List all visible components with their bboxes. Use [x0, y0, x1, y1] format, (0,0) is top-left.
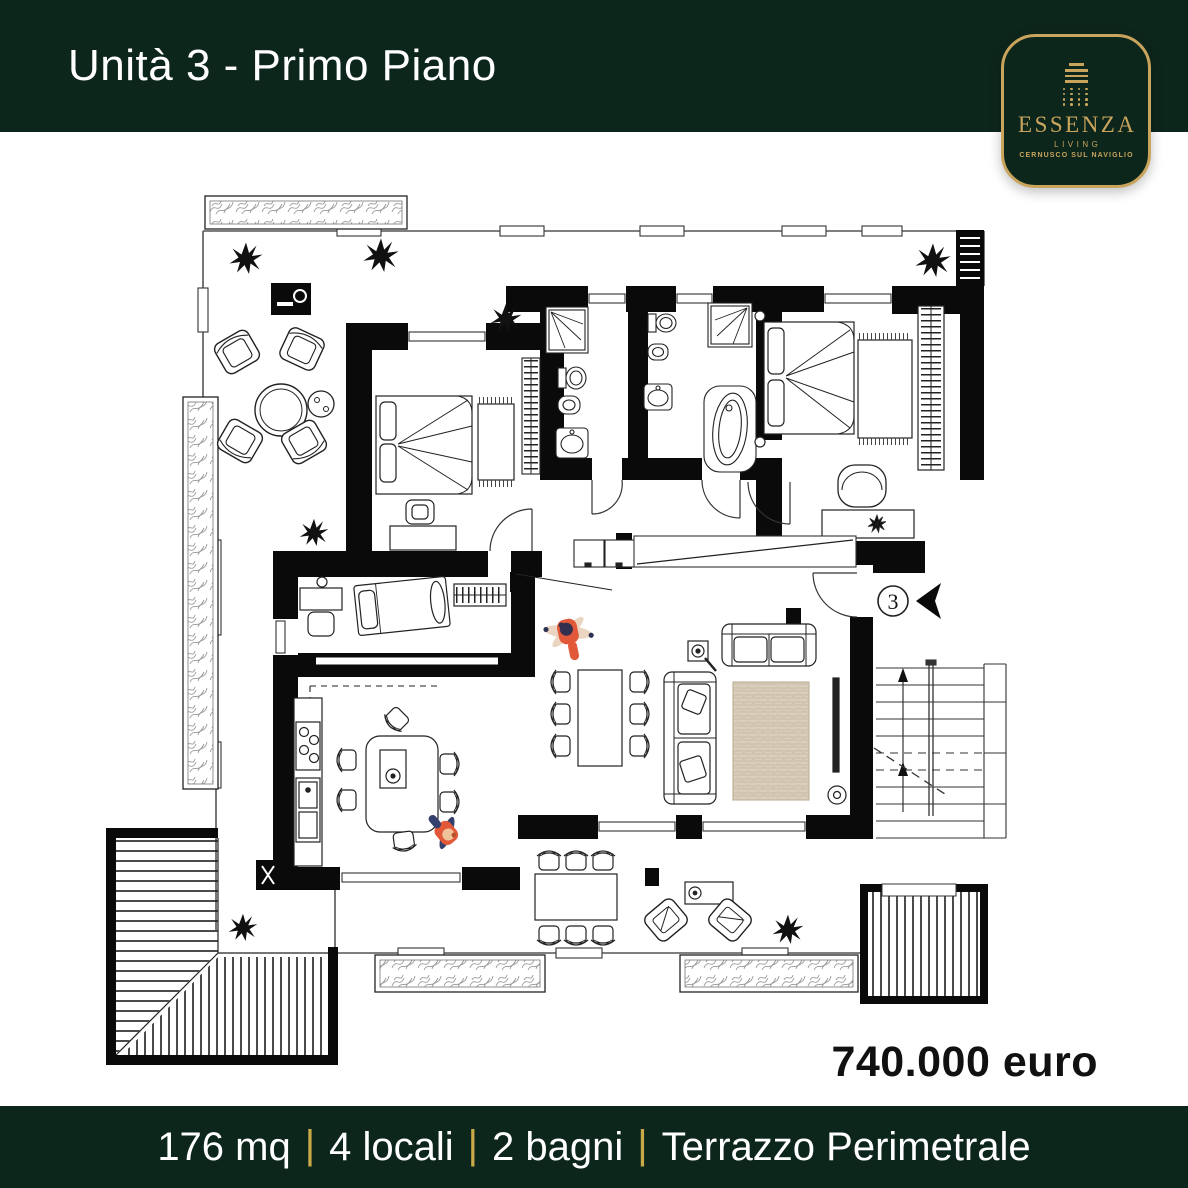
armchair — [838, 465, 886, 507]
kitchen — [294, 686, 459, 866]
footer-item-rooms: 4 locali — [329, 1125, 454, 1170]
single-bed — [354, 576, 451, 635]
footer-item-baths: 2 bagni — [492, 1125, 623, 1170]
chair — [537, 926, 561, 945]
essenza-logo: ESSENZA LIVING CERNUSCO SUL NAVIGLIO — [1001, 34, 1151, 188]
chair — [337, 788, 356, 812]
floor-plan: 3 — [90, 185, 1010, 1065]
stairs — [874, 660, 1006, 838]
dining-table — [578, 670, 622, 766]
sofa-horizontal — [722, 624, 816, 666]
outdoor-table — [535, 874, 617, 920]
chair — [337, 748, 356, 772]
terrace-lounge-area — [212, 243, 334, 467]
master-bedroom — [755, 306, 944, 538]
toilet — [558, 367, 586, 389]
terrace-armchair — [212, 328, 262, 376]
bedroom1 — [376, 358, 540, 550]
tv — [833, 678, 839, 772]
sink — [556, 428, 588, 458]
planter-bottom-right — [680, 955, 858, 992]
hallway — [574, 536, 856, 567]
lounge-chair — [642, 896, 690, 944]
chair — [630, 702, 649, 726]
wardrobe-rack — [918, 306, 944, 470]
terrace-armchair — [215, 417, 265, 465]
plant-icon — [230, 243, 263, 275]
bathtub — [704, 386, 756, 472]
terrace-dining-area — [535, 851, 754, 945]
chair — [391, 830, 417, 852]
desk-chair — [308, 612, 334, 636]
logo-brand-text: ESSENZA — [1018, 113, 1136, 136]
desk — [390, 526, 456, 550]
rug — [733, 682, 809, 800]
footer-bar: 176 mq | 4 locali | 2 bagni | Terrazzo P… — [0, 1106, 1188, 1188]
chair — [551, 670, 570, 694]
entrance-arrow-icon — [916, 583, 941, 619]
speaker — [828, 786, 846, 804]
chair — [630, 734, 649, 758]
chair — [591, 851, 615, 870]
terrace-armchair — [278, 326, 327, 373]
planter-left — [183, 397, 218, 789]
desk — [300, 588, 342, 610]
chair — [440, 790, 459, 814]
plant-icon — [300, 519, 329, 546]
footer-separator: | — [637, 1123, 647, 1168]
plant-icon — [229, 914, 258, 941]
rug — [478, 404, 514, 480]
plant-icon — [915, 243, 950, 277]
person — [540, 611, 598, 665]
side-table — [308, 391, 334, 417]
logo-tagline-text: LIVING — [1054, 140, 1101, 149]
footer-separator: | — [305, 1123, 315, 1168]
rug — [858, 340, 912, 438]
bidet — [648, 344, 668, 360]
unit-marker: 3 — [878, 583, 941, 619]
chair — [630, 670, 649, 694]
bidet — [558, 396, 580, 414]
deck-bottom-right — [860, 884, 988, 1004]
unit-number: 3 — [888, 589, 899, 614]
clothes-rack — [454, 584, 506, 606]
footer-separator: | — [468, 1123, 478, 1168]
plant-icon — [773, 915, 804, 944]
chair — [551, 734, 570, 758]
chair — [591, 926, 615, 945]
footer-item-terrace: Terrazzo Perimetrale — [662, 1125, 1031, 1170]
toilet — [648, 314, 676, 332]
planter-bottom-left — [375, 955, 545, 992]
desk — [822, 510, 914, 538]
logo-location-text: CERNUSCO SUL NAVIGLIO — [1019, 152, 1133, 159]
logo-lines-icon — [1065, 63, 1088, 82]
plant-icon — [363, 238, 398, 272]
sofa-vertical — [664, 672, 716, 804]
door-bedroom1 — [490, 509, 532, 551]
chair — [551, 702, 570, 726]
bathroom2 — [644, 303, 756, 472]
chair — [564, 926, 588, 945]
footer-item-area: 176 mq — [157, 1125, 290, 1170]
chair — [537, 851, 561, 870]
chair — [381, 704, 411, 734]
page-title: Unità 3 - Primo Piano — [68, 0, 497, 132]
sink — [644, 384, 672, 410]
chair — [564, 851, 588, 870]
door-bathroom2 — [702, 480, 740, 518]
logo-dots-icon — [1063, 88, 1090, 106]
living-room — [551, 624, 846, 804]
planter-top — [205, 196, 407, 229]
price-label: 740.000 euro — [831, 1038, 1098, 1087]
chair — [440, 752, 459, 776]
closet-rack — [522, 358, 540, 474]
door-entry — [813, 573, 857, 617]
door-bathroom1 — [592, 480, 622, 514]
